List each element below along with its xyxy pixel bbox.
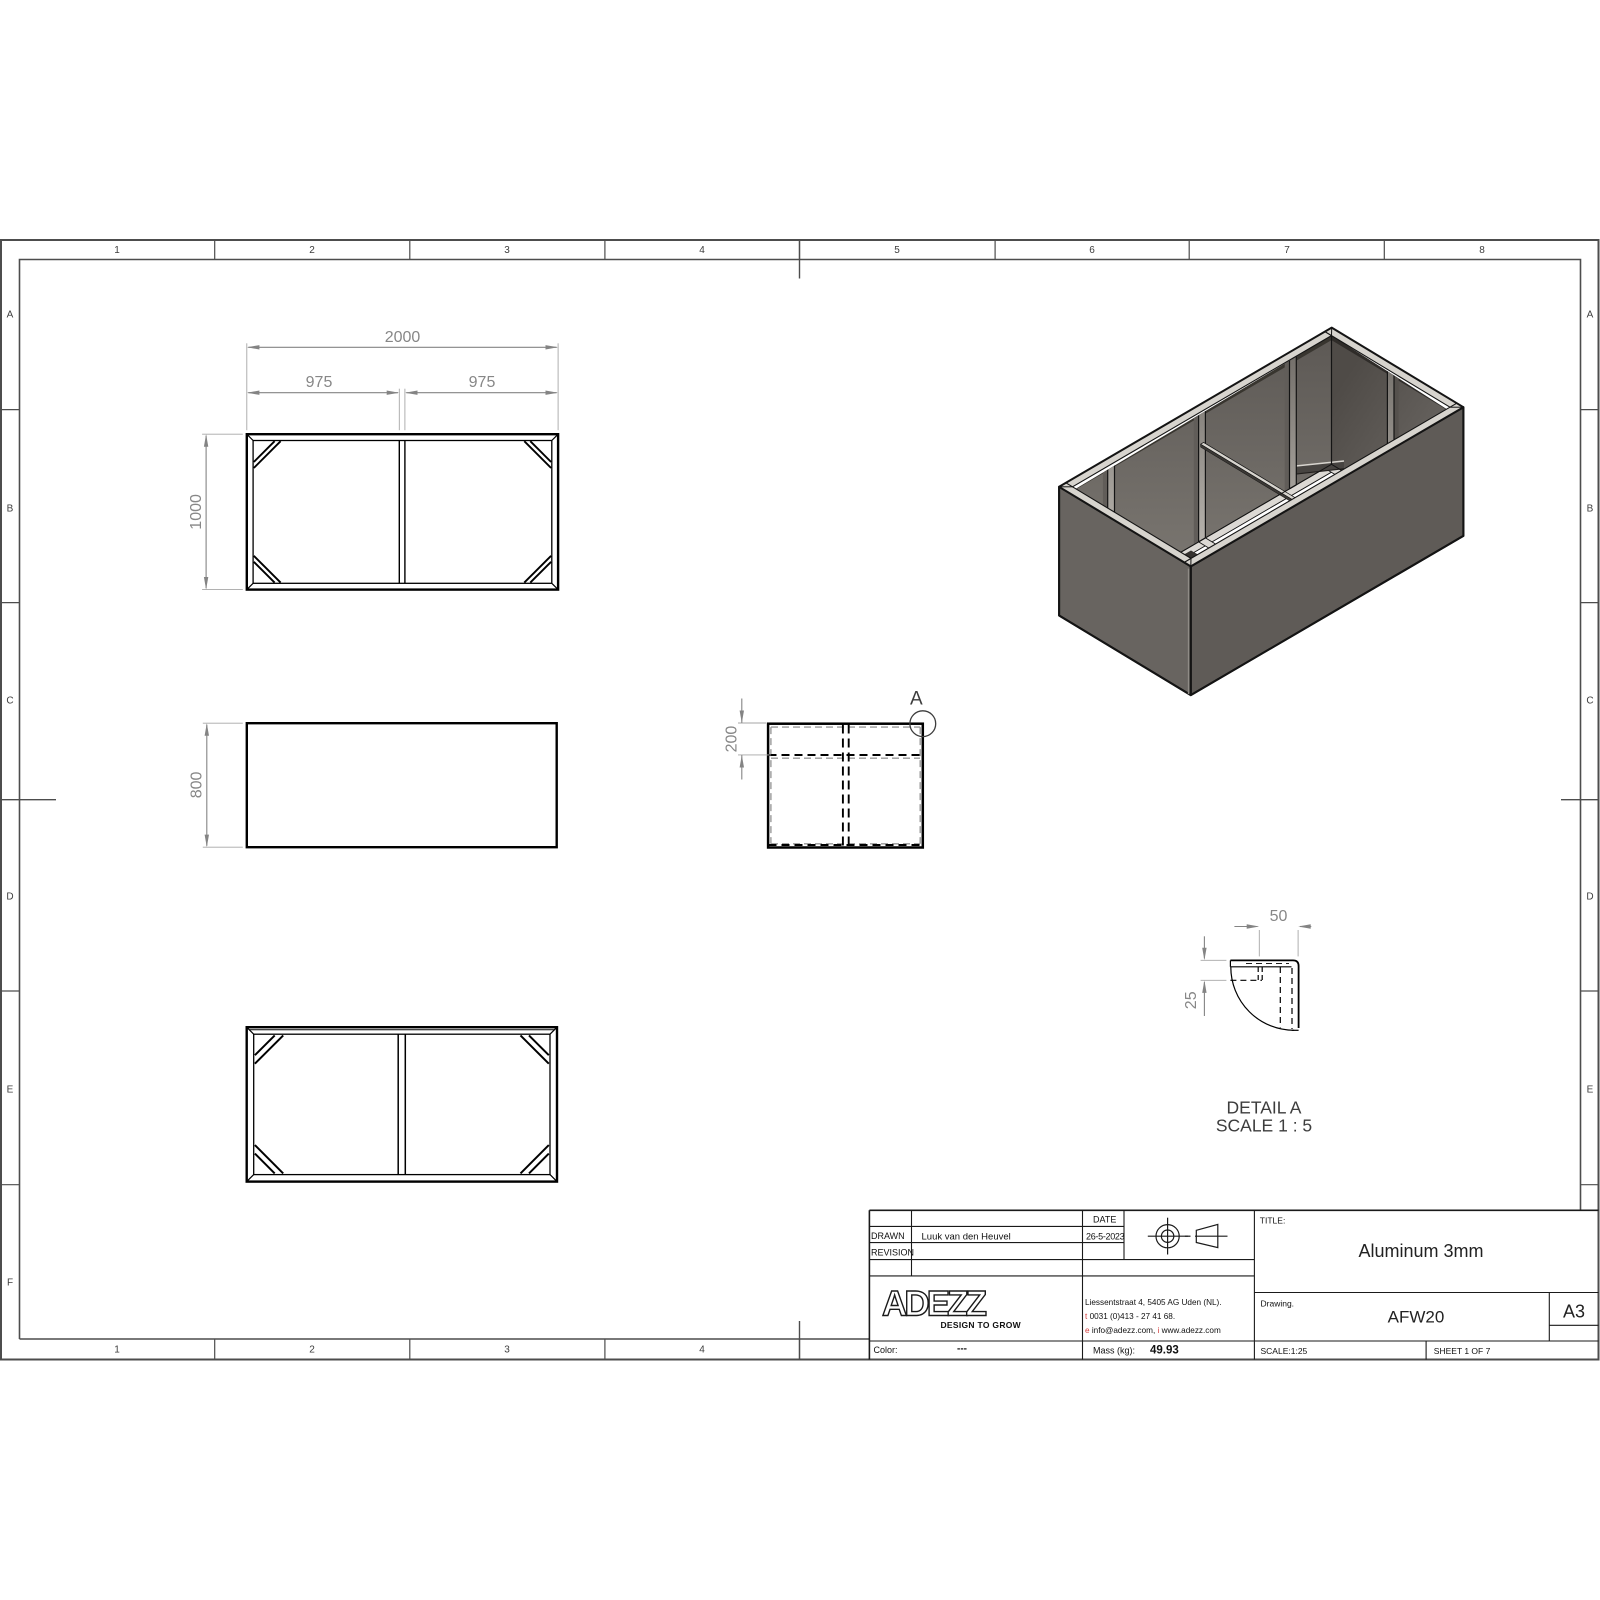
svg-text:ADEZZ: ADEZZ — [882, 1285, 987, 1324]
svg-text:7: 7 — [1284, 245, 1290, 256]
svg-text:TITLE:: TITLE: — [1260, 1216, 1286, 1226]
svg-text:e info@adezz.com, i www.adezz.: e info@adezz.com, i www.adezz.com — [1085, 1326, 1221, 1335]
svg-text:DRAWN: DRAWN — [871, 1231, 905, 1241]
svg-text:4: 4 — [699, 1345, 705, 1356]
svg-text:D: D — [1586, 892, 1593, 903]
svg-text:DESIGN TO GROW: DESIGN TO GROW — [940, 1320, 1021, 1330]
svg-text:8: 8 — [1479, 245, 1485, 256]
svg-text:---: --- — [957, 1344, 967, 1355]
svg-text:3: 3 — [504, 1345, 510, 1356]
svg-text:Aluminum 3mm: Aluminum 3mm — [1358, 1241, 1483, 1261]
svg-text:2: 2 — [309, 1345, 315, 1356]
svg-text:2: 2 — [309, 245, 315, 256]
svg-text:A: A — [910, 689, 923, 710]
svg-text:50: 50 — [1270, 908, 1288, 925]
svg-text:C: C — [6, 696, 13, 707]
svg-text:2000: 2000 — [385, 329, 421, 346]
svg-text:SHEET 1 OF 7: SHEET 1 OF 7 — [1434, 1346, 1491, 1356]
svg-text:DATE: DATE — [1093, 1215, 1116, 1225]
svg-text:Liessentstraat 4, 5405 AG Uden: Liessentstraat 4, 5405 AG Uden (NL). — [1085, 1298, 1222, 1307]
svg-text:B: B — [7, 504, 14, 515]
svg-text:C: C — [1586, 696, 1593, 707]
svg-text:25: 25 — [1183, 991, 1200, 1009]
svg-text:975: 975 — [306, 374, 333, 391]
svg-text:t 0031 (0)413 - 27 41 68.: t 0031 (0)413 - 27 41 68. — [1085, 1312, 1175, 1321]
svg-text:A: A — [7, 310, 14, 321]
svg-text:Drawing.: Drawing. — [1261, 1299, 1295, 1309]
svg-text:1: 1 — [114, 245, 120, 256]
svg-text:A: A — [1587, 310, 1594, 321]
svg-text:F: F — [7, 1278, 13, 1289]
svg-text:Mass (kg):: Mass (kg): — [1093, 1346, 1135, 1356]
svg-text:3: 3 — [504, 245, 510, 256]
svg-text:AFW20: AFW20 — [1388, 1308, 1445, 1327]
svg-text:E: E — [1587, 1085, 1594, 1096]
svg-text:26-5-2023: 26-5-2023 — [1086, 1232, 1125, 1242]
svg-text:A3: A3 — [1563, 1302, 1585, 1322]
svg-text:Color:: Color: — [874, 1345, 898, 1355]
svg-text:800: 800 — [189, 771, 206, 798]
svg-text:1000: 1000 — [188, 494, 205, 530]
svg-text:4: 4 — [699, 245, 705, 256]
svg-text:5: 5 — [894, 245, 900, 256]
svg-text:6: 6 — [1089, 245, 1095, 256]
svg-text:SCALE:1:25: SCALE:1:25 — [1261, 1346, 1308, 1356]
svg-text:1: 1 — [114, 1345, 120, 1356]
svg-text:SCALE 1 : 5: SCALE 1 : 5 — [1216, 1116, 1312, 1136]
svg-text:REVISION: REVISION — [871, 1248, 914, 1258]
svg-text:B: B — [1587, 504, 1594, 515]
svg-text:DETAIL A: DETAIL A — [1227, 1098, 1302, 1118]
svg-text:200: 200 — [724, 726, 741, 753]
svg-text:D: D — [6, 892, 13, 903]
svg-text:E: E — [7, 1085, 14, 1096]
svg-text:49.93: 49.93 — [1150, 1345, 1179, 1357]
svg-text:975: 975 — [469, 374, 496, 391]
svg-text:Luuk van den Heuvel: Luuk van den Heuvel — [922, 1232, 1011, 1243]
